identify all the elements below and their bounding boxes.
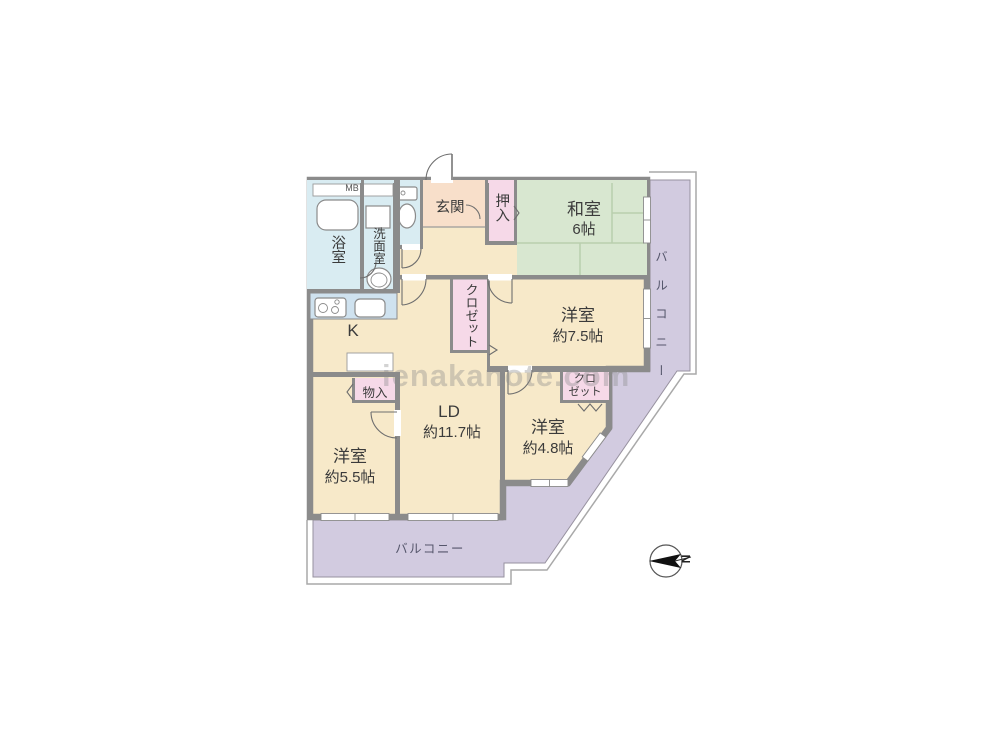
western-room-1-name: 洋室	[528, 306, 628, 325]
stove	[315, 298, 346, 317]
closet-tall-label: クロゼット	[463, 283, 478, 348]
bath-label: 浴室	[329, 235, 345, 264]
balcony-bottom-label: バルコニー	[380, 542, 480, 556]
meter-box-label: MB	[312, 183, 392, 193]
compass-north-label: N	[678, 555, 692, 564]
entrance-label: 玄関	[420, 200, 480, 216]
floorplan-page: MB 浴室 洗面室 玄関 押入 和室 6帖 クロゼット 洋室 約7.5帖 K 物…	[0, 0, 1000, 750]
japanese-room-size: 6帖	[534, 222, 634, 239]
washroom-label: 洗面室	[371, 227, 385, 265]
balcony-side-label: バルコニー	[653, 250, 667, 393]
japanese-room-name: 和室	[534, 200, 634, 219]
bathtub	[317, 200, 358, 230]
wash-cabinet	[366, 206, 390, 228]
western-room-1-size: 約7.5帖	[528, 329, 628, 346]
oshiire-label: 押入	[493, 193, 509, 222]
western-room-2-size: 約5.5帖	[300, 470, 400, 487]
western-room-3-name: 洋室	[498, 418, 598, 437]
toilet-bowl	[399, 204, 416, 228]
living-dining-size: 約11.7帖	[397, 425, 507, 442]
kitchen-sink	[355, 299, 385, 317]
western-room-3-size: 約4.8帖	[498, 441, 598, 458]
site-watermark: ienakanote.com	[382, 358, 612, 394]
living-dining-name: LD	[399, 402, 499, 421]
western-room-2-name: 洋室	[300, 447, 400, 466]
kitchen-label: K	[333, 321, 373, 340]
